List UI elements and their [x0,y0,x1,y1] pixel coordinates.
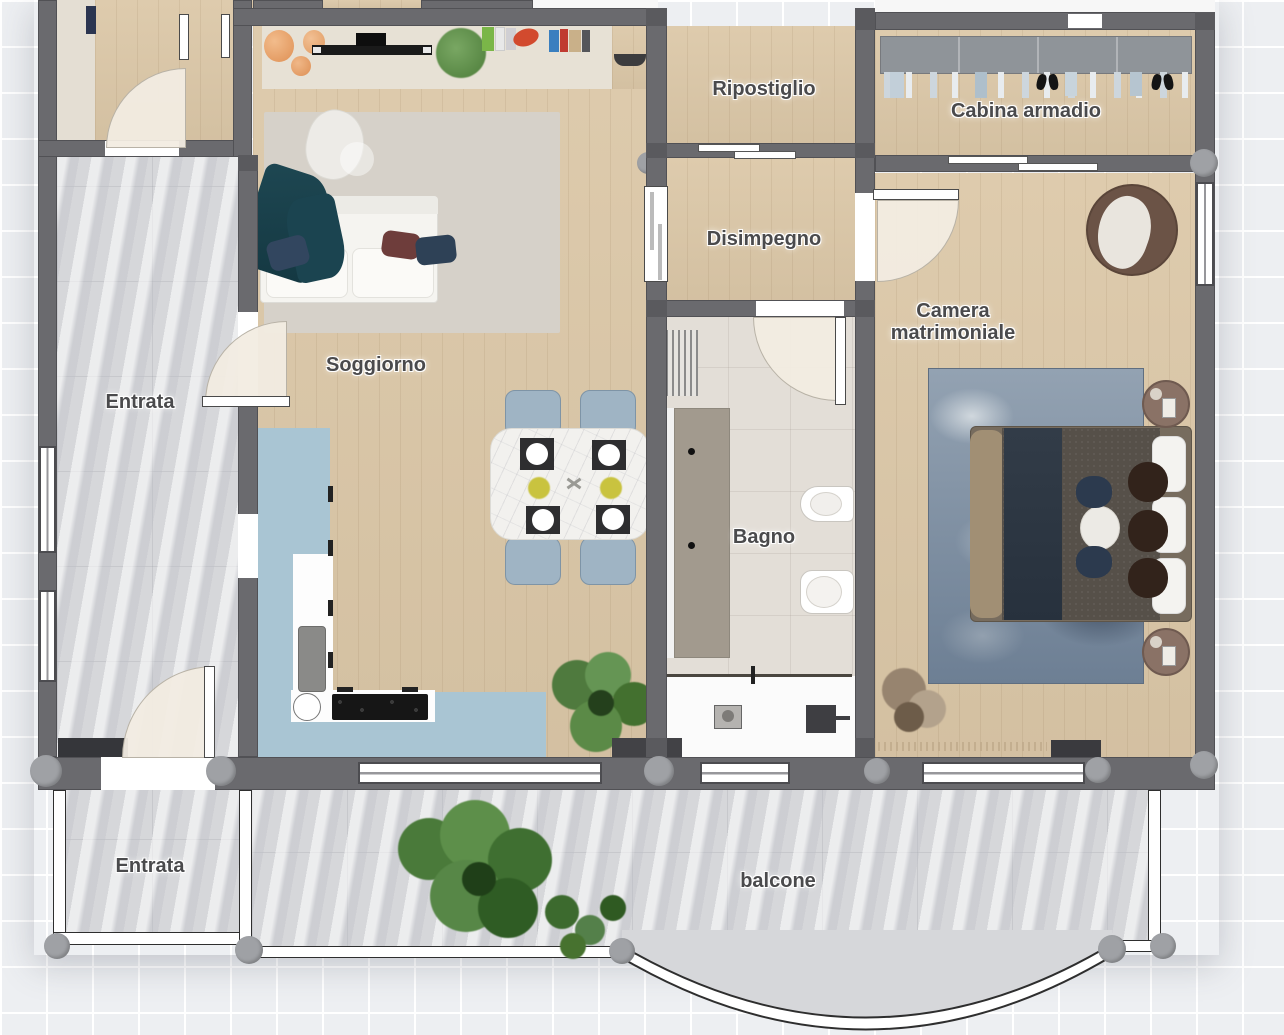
dining-chair [580,535,636,585]
kitchen-cooktop [332,694,428,720]
hanging-garment [1065,72,1077,96]
bed-footboard [970,430,1004,618]
railing-entrata-left [53,790,66,942]
doormat [1051,740,1101,757]
wall-junction [1195,12,1215,30]
window-entrata-left [39,446,56,553]
pillar [30,755,62,787]
laundry-divider [666,674,852,677]
room-label-bagno: Bagno [664,526,864,548]
sliding-door-cabina [948,156,1028,164]
wall-soggiorno-middle [646,8,667,758]
plate [598,444,620,466]
floor-balcone [252,790,1152,948]
wardrobe-rail [880,36,1192,74]
vanity-faucet [688,448,695,455]
hanging-garment [890,72,904,98]
room-label-cabina-armadio: Cabina armadio [876,100,1176,122]
pillar [1190,149,1218,177]
wall-top-right [875,12,1215,30]
room-label-entrata-balcone: Entrata [70,855,230,877]
room-label-soggiorno: Soggiorno [276,354,476,376]
bidet-bowl [810,492,842,516]
wall-junction [855,738,875,757]
nightstand-decor [1150,388,1162,400]
book [560,29,568,52]
sliding-door-ripostiglio [734,151,796,159]
pocket-door-line [658,224,662,280]
kitchen-cabinet-mark [402,687,418,692]
tv-console-cap [313,47,321,53]
wall-shelf-dark [614,54,646,66]
kitchen-cabinet-mark [328,652,333,668]
laundry-equipment-arm [836,716,850,720]
towel-rack [666,330,698,396]
door-leaf [873,189,959,200]
bed-pillow-navy [1076,546,1112,578]
wall-junction [855,8,875,30]
book [569,30,581,52]
wall-art-navy [86,6,96,34]
tv-console-cap [423,47,431,53]
pillar [44,933,70,959]
bed-cushion-brown [1128,462,1168,502]
lamp-orange-small [291,56,311,76]
bed-throw-navy [1004,428,1062,620]
kitchen-cabinet-mark [337,687,353,692]
wall-junction [646,738,667,757]
wall-junction [238,155,258,171]
bed-cushion-brown [1128,510,1168,552]
top-right-sliver [875,0,1215,12]
room-label-camera: Camera matrimoniale [853,300,1053,345]
kitchen-cabinet-mark [328,540,333,556]
wall-outer-right [1195,12,1215,757]
plate [526,443,548,465]
window-laundry [700,762,790,784]
book [582,30,590,52]
decor-plant [436,28,486,78]
pillow-navy [415,234,458,266]
pillar [206,756,236,786]
bed-white-blanket-ball [1080,506,1120,550]
book [549,30,559,52]
table-flowers [600,477,622,499]
palm-center [462,862,496,896]
wall-gap-top-right [1068,14,1102,28]
wall-junction [646,143,667,158]
kitchen-cabinet-mark [328,600,333,616]
wall-entrata-soggiorno [238,155,258,757]
wall-junction [646,8,667,26]
nightstand-decor [1150,636,1162,648]
window-camera-east [1196,182,1214,286]
wall-junction [855,143,875,158]
pillar [235,936,263,964]
kitchen-sink [298,626,326,692]
hanging-garment [1130,72,1142,96]
door-leaf [204,666,215,758]
book [495,27,505,51]
palm-scatter [600,895,626,921]
wall-junction [646,300,667,317]
room-label-ripostiglio: Ripostiglio [664,78,864,100]
lamp-orange-large [264,30,294,62]
wall-middle-camera [855,8,875,757]
hanging-garment [975,72,987,98]
nightstand-decor-card [1162,646,1176,666]
doormat [58,738,128,757]
pocket-door-line [650,192,654,250]
laundry-divider-tick [751,666,755,684]
wall-top-main [233,8,658,26]
pillar [644,756,674,786]
door-opening-bagno [756,301,844,316]
kitchen-round-sink [293,693,321,721]
plate [532,509,554,531]
tv-console [312,45,432,55]
pillar [1098,935,1126,963]
pillar [1150,933,1176,959]
floorplan-canvas: Ripostiglio Cabina armadio Disimpegno Ca… [0,0,1284,1032]
railing-entrata-bottom [53,932,245,945]
dining-chair [505,535,561,585]
bed-pillow-navy [1076,476,1112,508]
window-camera-south [922,762,1085,784]
washing-machine-door [722,710,734,722]
plate [602,508,624,530]
palm-scatter [545,895,579,929]
door-opening-entrata-balcone [101,757,215,790]
bed-cushion-brown [1128,558,1168,598]
door-leaf [221,14,230,58]
pillar [1085,757,1111,783]
balcone-curved-railing [600,930,1180,1035]
kitchen-cabinet-mark [328,486,333,502]
toilet-seat [806,576,842,608]
book [482,27,494,51]
room-label-disimpegno: Disimpegno [664,228,864,250]
floor-plant-center [588,690,614,716]
room-label-entrata: Entrata [60,391,220,413]
railing-balcone-right [1148,790,1161,948]
pillar [609,938,635,964]
rug-dust-circle [340,142,374,176]
room-label-balcone: balcone [678,870,878,892]
door-leaf [835,317,846,405]
dried-plant-leaf [894,702,924,732]
pillar [1190,751,1218,779]
door-leaf [179,14,189,60]
railing-divider [239,790,252,958]
door-opening-kitchen [238,514,258,578]
laundry-equipment-icon [806,705,836,733]
floorplan-page: { "floorplan": { "type": "apartment-floo… [0,0,1284,1032]
palm-scatter [560,933,586,959]
rug-fringe [872,742,1047,751]
table-flowers [528,477,550,499]
window-entrata-left [39,590,56,682]
window-soggiorno [358,762,602,784]
sliding-door-cabina [1018,163,1098,171]
pillar [864,758,890,784]
nightstand-decor-card [1162,398,1176,418]
tv [356,33,386,46]
